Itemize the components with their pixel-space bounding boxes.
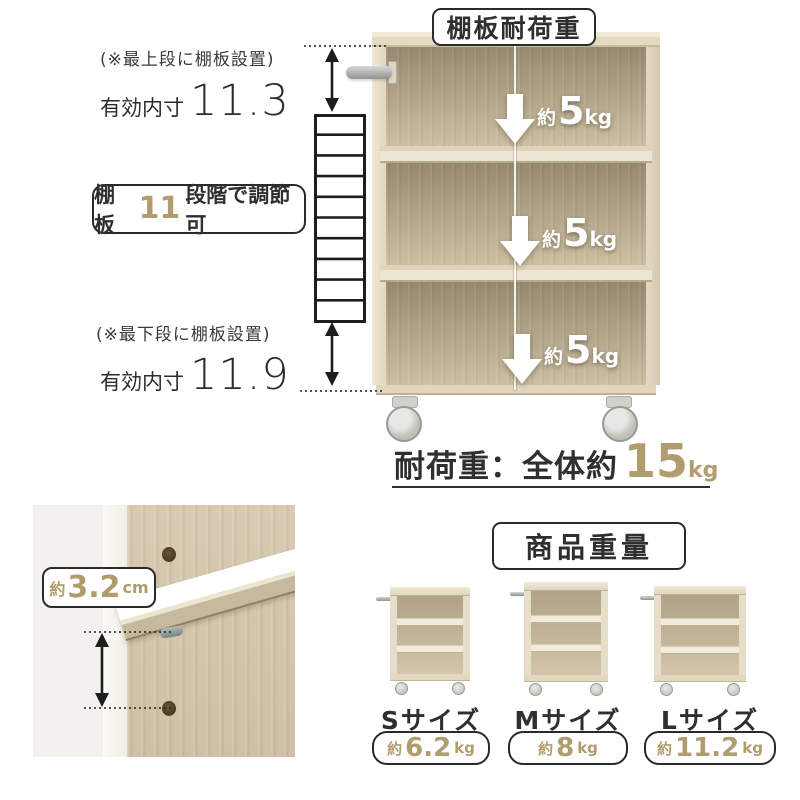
mini-body <box>524 591 608 675</box>
mini-shelf-m <box>524 582 608 682</box>
shelf-load-title-badge: 棚板耐荷重 <box>432 8 596 46</box>
weight-badge-l: 約 11.2 kg <box>644 731 776 765</box>
shelf-board-1 <box>380 146 652 163</box>
product-infographic: 棚板耐荷重 約5kg 約5kg 約5kg (※最上段に棚板設置) 有効内寸 11… <box>0 0 800 800</box>
total-load-value: 15 <box>624 438 688 484</box>
inner-dim-value: 11.3 <box>190 76 290 126</box>
thickness-badge: 約 3.2 cm <box>42 567 156 608</box>
load-label-2: 約5kg <box>542 214 617 252</box>
mini-caster <box>727 683 740 696</box>
adjust-suffix: 段階で調節可 <box>185 179 304 239</box>
peg-hole-top <box>162 547 176 562</box>
product-weight-title: 商品重量 <box>525 526 653 566</box>
mini-shelf-board <box>531 645 601 652</box>
total-load-label: 耐荷重：全体約 <box>394 441 618 486</box>
weight-approx: 約 <box>538 738 553 759</box>
caster-wheel-left <box>386 406 422 442</box>
mini-shelf-board <box>397 646 463 653</box>
inner-dim-label: 有効内寸 <box>100 366 184 396</box>
shelf-right-wall <box>646 47 660 385</box>
down-arrow-icon-2 <box>500 216 540 266</box>
mini-caster <box>529 683 542 696</box>
load-label-3: 約5kg <box>544 331 619 369</box>
weight-value: 6.2 <box>405 735 451 761</box>
mini-shelf-board <box>661 619 739 626</box>
mini-caster <box>590 683 603 696</box>
thickness-detail-photo: 約 3.2 cm <box>10 505 295 757</box>
shelf-board-2 <box>380 265 652 282</box>
load-approx: 約 <box>537 103 556 130</box>
top-note: (※最上段に棚板設置) <box>100 45 275 70</box>
mini-shelf-l <box>654 586 746 682</box>
load-value: 5 <box>565 331 591 369</box>
thickness-unit: cm <box>123 578 149 597</box>
weight-value: 8 <box>556 735 574 761</box>
inner-dimension-top: 有効内寸 11.3 <box>100 76 290 126</box>
total-load-unit: kg <box>688 458 718 483</box>
ladder-steps-diagram <box>314 114 366 323</box>
down-arrow-icon-1 <box>495 94 535 144</box>
load-label-1: 約5kg <box>537 92 612 130</box>
total-load-text: 耐荷重：全体約 15 kg <box>394 438 718 486</box>
thickness-value: 3.2 <box>67 573 120 603</box>
mini-top-board <box>524 582 608 591</box>
shelf-base-board <box>376 385 656 395</box>
weight-approx: 約 <box>657 738 672 759</box>
load-unit: kg <box>589 227 617 251</box>
mini-shelf-board <box>397 619 463 626</box>
load-unit: kg <box>584 105 612 129</box>
load-unit: kg <box>591 344 619 368</box>
inner-dim-value: 11.9 <box>190 350 290 400</box>
measure-arrow-pitch <box>72 617 182 717</box>
product-weight-title-badge: 商品重量 <box>492 522 686 570</box>
shelf-load-title: 棚板耐荷重 <box>446 9 581 45</box>
weight-badge-m: 約 8 kg <box>508 731 628 765</box>
measure-arrow-bottom <box>298 318 388 398</box>
inner-dimension-bottom: 有効内寸 11.9 <box>100 350 290 400</box>
load-value: 5 <box>558 92 584 130</box>
adjust-prefix: 棚板 <box>94 179 134 239</box>
load-approx: 約 <box>544 342 563 369</box>
mini-caster <box>452 682 465 695</box>
mini-shelf-s <box>390 587 470 681</box>
mini-base <box>390 674 470 681</box>
down-arrow-icon-3 <box>502 334 542 384</box>
total-load-underline <box>392 486 710 488</box>
mini-caster <box>660 683 673 696</box>
load-value: 5 <box>563 214 589 252</box>
measure-arrow-top <box>300 40 390 118</box>
inner-dim-label: 有効内寸 <box>100 92 184 122</box>
weight-unit: kg <box>742 739 763 757</box>
thickness-approx: 約 <box>49 576 65 600</box>
mini-shelf-board <box>531 616 601 623</box>
weight-value: 11.2 <box>675 735 739 761</box>
weight-unit: kg <box>454 739 475 757</box>
load-approx: 約 <box>542 225 561 252</box>
mini-top-board <box>654 586 746 595</box>
mini-top-board <box>390 587 470 596</box>
mini-base <box>654 675 746 682</box>
adjustable-steps-badge: 棚板 11 段階で調節可 <box>92 184 306 234</box>
mini-body <box>390 596 470 674</box>
adjust-count: 11 <box>139 194 181 224</box>
mini-body <box>654 595 746 675</box>
weight-unit: kg <box>577 739 598 757</box>
mini-caster <box>395 682 408 695</box>
mini-shelf-board <box>661 647 739 654</box>
bottom-note: (※最下段に棚板設置) <box>96 320 271 345</box>
mini-base <box>524 675 608 682</box>
weight-approx: 約 <box>387 738 402 759</box>
weight-badge-s: 約 6.2 kg <box>372 731 490 765</box>
